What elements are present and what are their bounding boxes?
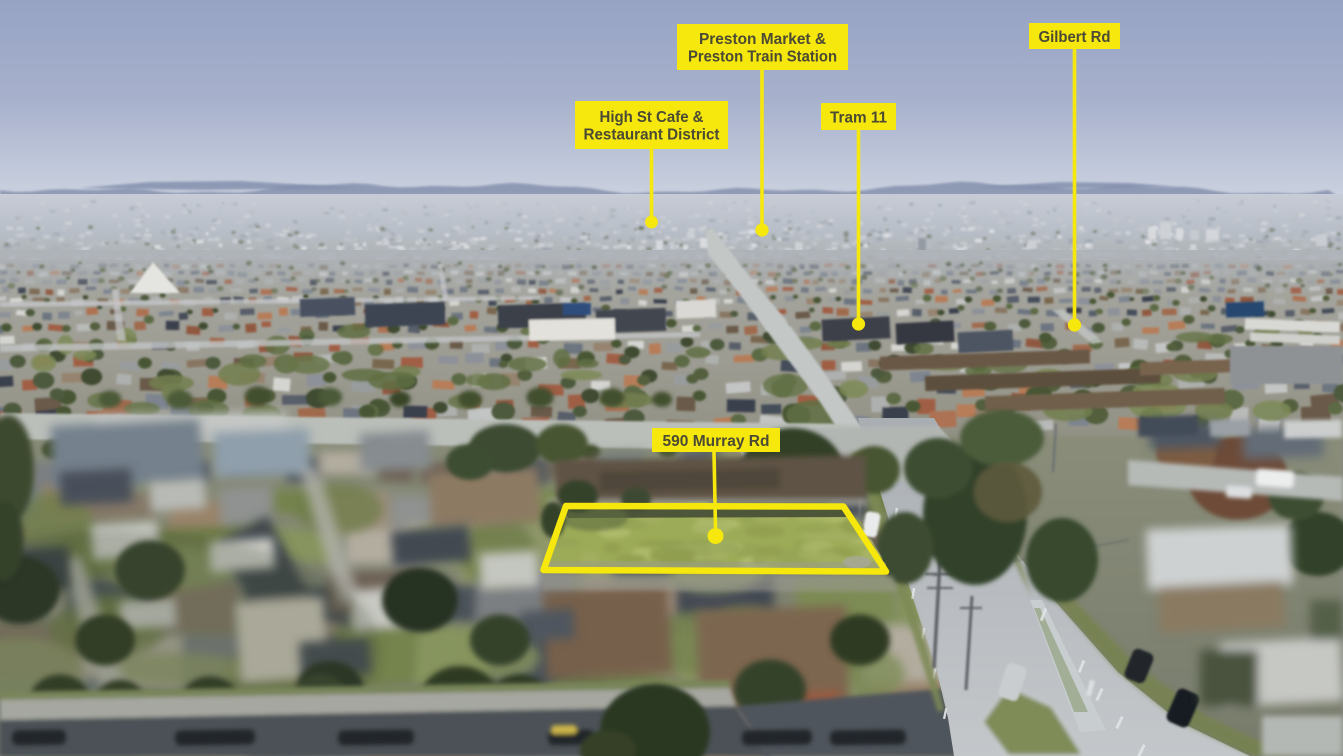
svg-text:Preston Train Station: Preston Train Station [688,49,837,66]
svg-text:Tram 11: Tram 11 [830,109,887,126]
svg-text:Preston Market &: Preston Market & [699,31,826,48]
svg-text:High St Cafe &: High St Cafe & [600,109,704,126]
svg-text:Gilbert Rd: Gilbert Rd [1039,29,1111,46]
svg-text:Restaurant District: Restaurant District [584,127,721,144]
svg-text:590 Murray Rd: 590 Murray Rd [663,433,770,450]
